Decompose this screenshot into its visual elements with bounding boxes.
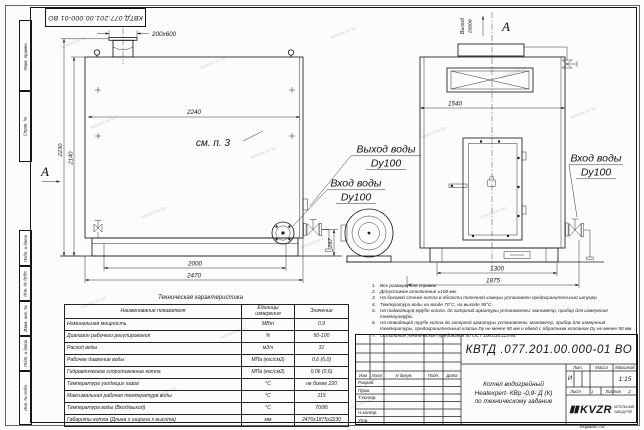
tech-row: Гидравлическое сопротивление котлаМПа (к… (65, 367, 349, 379)
tech-cell-name: Габариты котла (Длина х ширина х высота) (65, 415, 242, 427)
water-outlet-label: Выход воды (356, 144, 415, 156)
tech-cell-unit: % (242, 331, 295, 343)
tech-cell-name: Расход воды (65, 343, 242, 355)
tech-cell-unit: °С (242, 379, 295, 391)
product-title: Котел водогрейный Heatexpert- КВр -0,9- … (461, 364, 566, 424)
water-inlet-label-side: Вход воды (571, 153, 622, 165)
col-dokum: N докум. (384, 371, 424, 379)
lit-label: Лит. (566, 364, 590, 371)
dim-overall-length: 2470 (186, 273, 202, 280)
tech-cell-value: 0,6 (6,0) (295, 355, 349, 367)
port-labels: Выход воды Dy100 Вход воды Dy100 (293, 144, 421, 227)
water-inlet-dn-label-side: Dy100 (581, 167, 612, 179)
tech-row: Максимальная рабочая температура воды°С1… (65, 391, 349, 403)
tech-cell-name: Номинальная мощность (65, 319, 242, 331)
lit-value: И (566, 371, 574, 387)
col-list: Лист (370, 371, 384, 379)
kvzr-logo-sub1: КОТЕЛЬНЫЙ (614, 405, 634, 409)
col-data: Дата (443, 371, 461, 379)
tech-cell-unit: °С (242, 403, 295, 415)
tech-table: Наименование показателя Единицы измерени… (64, 304, 349, 427)
water-inlet-flange (272, 222, 294, 244)
tech-col-name: Наименование показателя (65, 305, 242, 319)
dim-pipe-height: 267 (328, 237, 334, 248)
tech-cell-value: 70/95 (295, 403, 349, 415)
tech-row: Температура воды (Вход/выход)°С70/95 (65, 403, 349, 415)
dim-height-overall: 2230 (58, 143, 64, 158)
tech-cell-name: Гидравлическое сопротивление котла (65, 367, 242, 379)
dim-front-width: 2240 (186, 109, 202, 116)
tech-cell-unit: МВт (242, 319, 295, 331)
lifting-eyebolt-icon (94, 50, 293, 58)
col-podp: Подп. (424, 371, 443, 379)
tech-cell-name: Рабочее давление воды (65, 355, 242, 367)
note-text: На отводящей трубе котла до запорной арм… (380, 320, 636, 332)
water-inlet-valve-side-icon (566, 219, 594, 259)
tech-cell-name: Температура уходящих газов (65, 379, 242, 391)
tech-row: Температура уходящих газов°Сне более 220 (65, 379, 349, 391)
sign-row-blank (358, 402, 384, 410)
sign-row-tkontr: Т.контр. (358, 394, 384, 402)
sheets-value: 2 (624, 387, 635, 395)
note-number: 5. (372, 308, 380, 320)
tech-cell-value: 2470х1875х2230 (295, 415, 349, 427)
tech-row: Расход водым3/ч31 (65, 343, 349, 355)
title-block: КВТД .077.201.00.000-01 ВО Котел водогре… (355, 334, 638, 425)
product-title-line3: по техническому задание (475, 398, 553, 407)
water-inlet-label-front: Вход воды (331, 178, 382, 190)
tech-row: Номинальная мощностьМВт0,9 (65, 319, 349, 331)
dim-side-width: 1540 (448, 101, 463, 108)
water-inlet-dn-label-front: Dy100 (341, 192, 372, 204)
tech-cell-unit: мм (242, 415, 295, 427)
tech-cell-value: не более 220 (295, 379, 349, 391)
product-title-line1: Котел водогрейный (483, 381, 544, 390)
sign-row-utv: Утв. (358, 417, 384, 425)
tech-col-value: Значение (295, 305, 349, 319)
tech-cell-unit: МПа (кгс/см2) (242, 355, 295, 367)
kvzr-logo-subtitle: КОТЕЛЬНЫЙ ЗАВОД РЭП (614, 405, 634, 413)
notes-list: 1.Все размеры для справок 2.Допустимое о… (372, 283, 636, 339)
lock-icon (488, 176, 496, 187)
tech-cell-value: 0,06 (0,6) (295, 367, 349, 379)
sheet-value: 1 (586, 387, 598, 395)
see-item-note: см. п. 3 (196, 138, 230, 149)
tech-cell-unit: м3/ч (242, 343, 295, 355)
gas-outlet-label-1: Выход (460, 18, 466, 34)
louver-panel (447, 68, 533, 92)
blower-fan (341, 209, 393, 262)
dim-height-body: 2140 (69, 151, 75, 166)
tech-cell-value: 31 (295, 343, 349, 355)
kvzr-logo-mark: ▮▮ (569, 404, 578, 415)
furnace-door (449, 138, 526, 240)
kvzr-logo-sub2: ЗАВОД РЭП (614, 410, 634, 414)
dim-base-length: 2000 (187, 261, 203, 268)
drain-valve-icon (94, 221, 102, 239)
col-izm: Изм (356, 371, 370, 379)
note-number: 6. (372, 320, 380, 332)
tech-cell-name: Температура воды (Вход/выход) (65, 403, 242, 415)
doc-number: КВТД .077.201.00.000-01 ВО (461, 335, 637, 364)
manufacturer-logo: ▮▮ KVZR КОТЕЛЬНЫЙ ЗАВОД РЭП (566, 395, 637, 424)
note-text: На подводящей трубе котла, до запорной а… (380, 308, 636, 320)
dim-chimney-size: 200х600 (151, 31, 177, 38)
tech-col-unit: Единицы измерения (242, 305, 295, 319)
tech-cell-name: Диапазон рабочего регулирования (65, 331, 242, 343)
note-item: 5.На подводящей трубе котла, до запорной… (372, 308, 636, 320)
dim-side-base: 1300 (490, 266, 505, 273)
tech-cell-unit: МПа (кгс/см2) (242, 367, 295, 379)
tech-row: Габариты котла (Длина х ширина х высота)… (65, 415, 349, 427)
sign-row-nkontr: Н.контр. (358, 409, 384, 417)
water-outlet-dn-label: Dy100 (371, 158, 402, 170)
tech-cell-unit: °С (242, 391, 295, 403)
drawing-sheet: kotelni-kv.kz kotelni-kv.kz kotelni-kv.k… (0, 0, 644, 430)
kvzr-logo-text: KVZR (580, 404, 612, 416)
tech-row: Диапазон рабочего регулирования%50-100 (65, 331, 349, 343)
tech-cell-value: 50-100 (295, 331, 349, 343)
sheets-label: Листов (602, 387, 624, 395)
tech-cell-value: 0,9 (295, 319, 349, 331)
tech-table-header-row: Наименование показателя Единицы измерени… (65, 305, 349, 319)
tech-cell-value: 115 (295, 391, 349, 403)
vent-valve-icon (562, 57, 577, 68)
tech-table-title: Техническая характеристика (64, 295, 337, 301)
sign-row-razrab: Разраб. (358, 379, 384, 387)
tech-row: Рабочее давление водыМПа (кгс/см2)0,6 (6… (65, 355, 349, 367)
view-a-letter-left: А (40, 164, 49, 179)
sheet-label: Лист (567, 387, 584, 395)
scale-label: Масштаб (613, 364, 637, 371)
mass-label: Масса (590, 364, 613, 371)
scale-value: 1:15 (613, 371, 637, 387)
gas-outlet-label-2: газов (468, 19, 474, 33)
note-item: 6.На отводящей трубе котла до запорной а… (372, 320, 636, 332)
sign-row-prov: Пров. (358, 387, 384, 395)
view-a-letter-side: А (501, 19, 510, 34)
format-label: Формат А3 (548, 424, 636, 429)
tech-cell-name: Максимальная рабочая температура воды (65, 391, 242, 403)
front-view: 200х600 2240 см. п. 3 (40, 28, 342, 283)
